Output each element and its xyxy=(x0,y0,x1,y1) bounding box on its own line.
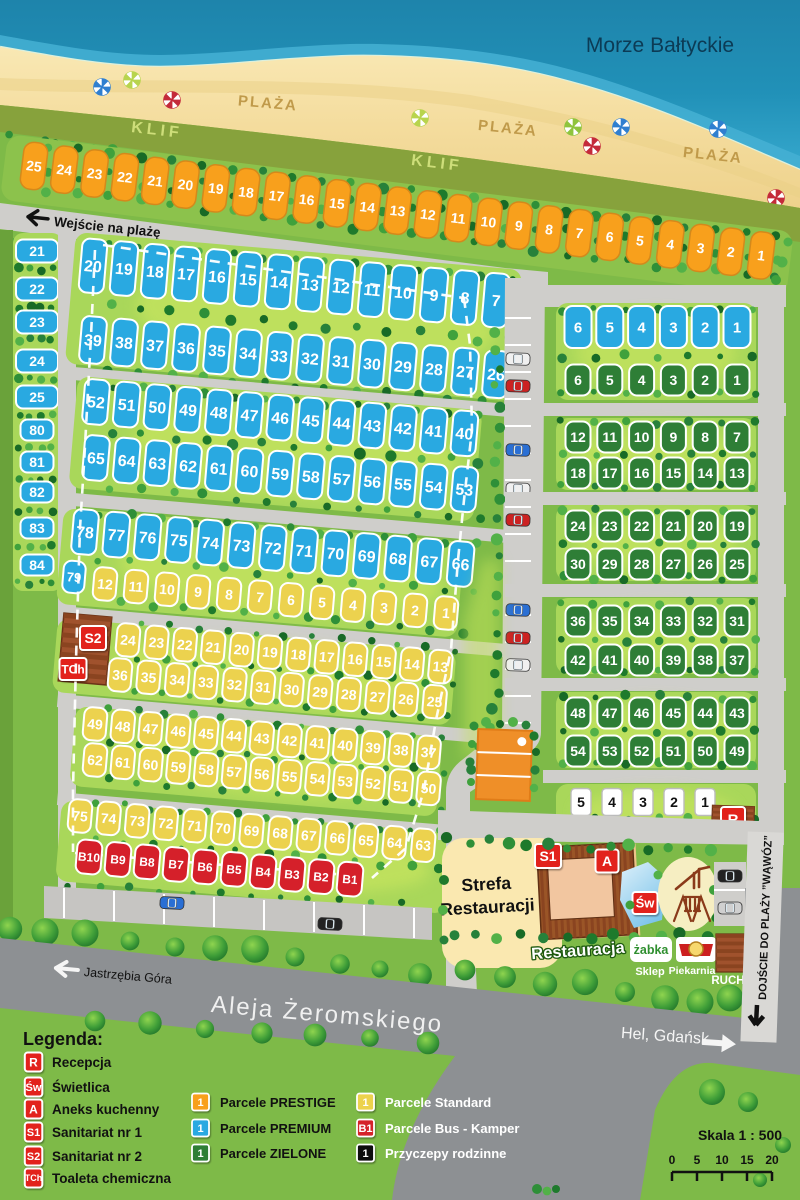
svg-text:80: 80 xyxy=(29,422,45,438)
svg-text:Skala 1 : 500: Skala 1 : 500 xyxy=(698,1127,782,1143)
svg-text:B8: B8 xyxy=(139,855,156,870)
svg-text:48: 48 xyxy=(209,404,228,422)
svg-text:43: 43 xyxy=(729,705,745,721)
svg-text:Parcele ZIELONE: Parcele ZIELONE xyxy=(220,1146,327,1161)
svg-text:83: 83 xyxy=(29,520,45,536)
svg-text:1: 1 xyxy=(701,794,709,810)
svg-text:35: 35 xyxy=(207,343,226,361)
svg-text:12: 12 xyxy=(570,429,586,445)
svg-text:14: 14 xyxy=(269,274,288,292)
svg-text:52: 52 xyxy=(86,394,105,412)
svg-text:Parcele PREMIUM: Parcele PREMIUM xyxy=(220,1121,331,1136)
svg-text:42: 42 xyxy=(570,652,586,668)
svg-text:3: 3 xyxy=(639,794,647,810)
svg-text:37: 37 xyxy=(145,337,164,355)
svg-text:68: 68 xyxy=(272,824,289,841)
svg-text:38: 38 xyxy=(392,741,409,758)
svg-text:32: 32 xyxy=(226,676,243,693)
svg-text:17: 17 xyxy=(602,465,618,481)
svg-text:4: 4 xyxy=(638,372,646,388)
svg-text:67: 67 xyxy=(420,553,439,571)
svg-text:46: 46 xyxy=(270,410,289,428)
svg-text:9: 9 xyxy=(670,429,678,445)
svg-text:7: 7 xyxy=(255,589,264,606)
svg-text:Legenda:: Legenda: xyxy=(23,1029,103,1049)
svg-text:63: 63 xyxy=(148,455,167,473)
svg-text:69: 69 xyxy=(243,822,260,839)
svg-text:34: 34 xyxy=(169,671,186,688)
svg-text:20: 20 xyxy=(177,176,195,194)
svg-text:73: 73 xyxy=(129,812,146,829)
svg-text:26: 26 xyxy=(398,691,415,708)
svg-text:20: 20 xyxy=(765,1153,779,1167)
svg-text:15: 15 xyxy=(666,465,682,481)
svg-text:17: 17 xyxy=(268,187,286,205)
svg-text:25: 25 xyxy=(29,389,45,405)
svg-text:1: 1 xyxy=(733,319,741,336)
svg-text:27: 27 xyxy=(666,556,682,572)
svg-text:18: 18 xyxy=(145,263,164,281)
svg-text:66: 66 xyxy=(451,556,470,574)
svg-text:37: 37 xyxy=(420,744,437,761)
svg-text:Sanitariat nr 2: Sanitariat nr 2 xyxy=(52,1149,142,1164)
svg-text:35: 35 xyxy=(602,613,618,629)
svg-text:41: 41 xyxy=(602,652,618,668)
svg-text:S1: S1 xyxy=(27,1127,40,1139)
svg-text:61: 61 xyxy=(114,754,131,771)
svg-text:12: 12 xyxy=(419,206,437,224)
svg-text:31: 31 xyxy=(729,613,745,629)
svg-text:54: 54 xyxy=(309,770,326,787)
svg-text:53: 53 xyxy=(602,743,618,759)
svg-text:44: 44 xyxy=(226,727,243,744)
svg-text:35: 35 xyxy=(140,669,157,686)
svg-text:24: 24 xyxy=(56,161,74,179)
svg-text:48: 48 xyxy=(570,705,586,721)
svg-text:9: 9 xyxy=(429,287,439,305)
svg-text:38: 38 xyxy=(114,335,133,353)
svg-text:15: 15 xyxy=(740,1153,754,1167)
svg-text:7: 7 xyxy=(491,293,501,311)
svg-text:13: 13 xyxy=(432,658,449,675)
svg-text:16: 16 xyxy=(347,651,364,668)
svg-text:46: 46 xyxy=(170,722,187,739)
svg-text:TCh: TCh xyxy=(25,1173,43,1183)
svg-text:32: 32 xyxy=(697,613,713,629)
svg-text:23: 23 xyxy=(29,314,45,330)
svg-text:50: 50 xyxy=(148,399,167,417)
svg-text:Morze Bałtyckie: Morze Bałtyckie xyxy=(586,34,734,57)
svg-text:Toaleta chemiczna: Toaleta chemiczna xyxy=(52,1171,172,1186)
svg-text:73: 73 xyxy=(232,537,251,555)
svg-text:1: 1 xyxy=(362,1148,368,1160)
svg-text:29: 29 xyxy=(312,683,329,700)
svg-text:2: 2 xyxy=(701,372,709,388)
svg-text:16: 16 xyxy=(207,269,226,287)
svg-text:74: 74 xyxy=(200,535,219,553)
svg-text:17: 17 xyxy=(318,648,335,665)
svg-text:Piekarnia: Piekarnia xyxy=(669,965,716,977)
svg-text:45: 45 xyxy=(666,705,682,721)
svg-text:8: 8 xyxy=(224,586,233,603)
svg-text:23: 23 xyxy=(148,634,165,651)
svg-text:45: 45 xyxy=(301,412,320,430)
svg-text:36: 36 xyxy=(112,666,129,683)
svg-text:61: 61 xyxy=(209,460,228,478)
svg-text:30: 30 xyxy=(362,356,381,374)
svg-text:6: 6 xyxy=(286,591,295,608)
svg-text:31: 31 xyxy=(331,353,350,371)
svg-text:10: 10 xyxy=(634,429,650,445)
svg-text:45: 45 xyxy=(198,725,215,742)
svg-text:12: 12 xyxy=(97,575,114,592)
svg-text:22: 22 xyxy=(176,636,193,653)
svg-text:36: 36 xyxy=(176,340,195,358)
svg-text:69: 69 xyxy=(357,548,376,566)
svg-text:3: 3 xyxy=(379,599,388,616)
svg-text:10: 10 xyxy=(715,1153,729,1167)
svg-text:25: 25 xyxy=(25,157,43,175)
svg-text:28: 28 xyxy=(424,361,443,379)
svg-text:23: 23 xyxy=(602,518,618,534)
svg-text:13: 13 xyxy=(729,465,745,481)
svg-text:14: 14 xyxy=(359,198,377,216)
svg-text:9: 9 xyxy=(193,584,202,601)
svg-text:Parcele PRESTIGE: Parcele PRESTIGE xyxy=(220,1095,336,1110)
svg-text:11: 11 xyxy=(602,429,617,445)
svg-text:1: 1 xyxy=(733,372,741,388)
svg-text:24: 24 xyxy=(570,518,586,534)
svg-text:51: 51 xyxy=(392,777,409,794)
svg-text:72: 72 xyxy=(263,540,282,558)
svg-text:52: 52 xyxy=(634,743,650,759)
svg-text:2: 2 xyxy=(670,794,678,810)
svg-text:68: 68 xyxy=(388,551,407,569)
svg-text:55: 55 xyxy=(393,476,412,494)
svg-text:B10: B10 xyxy=(77,849,100,865)
svg-text:15: 15 xyxy=(328,194,346,212)
svg-text:13: 13 xyxy=(389,202,407,220)
svg-text:49: 49 xyxy=(87,715,104,732)
svg-text:21: 21 xyxy=(666,518,682,534)
svg-text:71: 71 xyxy=(294,543,313,561)
svg-text:78: 78 xyxy=(75,524,94,542)
svg-text:66: 66 xyxy=(329,829,346,846)
svg-text:44: 44 xyxy=(697,705,713,721)
svg-text:B5: B5 xyxy=(226,862,243,877)
svg-text:53: 53 xyxy=(337,773,354,790)
svg-text:64: 64 xyxy=(386,834,403,851)
svg-text:B1: B1 xyxy=(342,872,359,887)
svg-text:4: 4 xyxy=(637,319,646,336)
svg-text:39: 39 xyxy=(83,332,102,350)
svg-text:16: 16 xyxy=(634,465,650,481)
svg-text:22: 22 xyxy=(116,168,134,186)
svg-text:34: 34 xyxy=(238,345,257,363)
svg-text:22: 22 xyxy=(634,518,650,534)
svg-text:B3: B3 xyxy=(284,867,301,882)
svg-text:72: 72 xyxy=(157,815,174,832)
svg-text:64: 64 xyxy=(117,453,136,471)
svg-text:71: 71 xyxy=(186,817,203,834)
svg-text:A: A xyxy=(602,853,612,869)
svg-text:2: 2 xyxy=(701,319,709,336)
svg-text:26: 26 xyxy=(697,556,713,572)
svg-text:Św: Św xyxy=(26,1081,42,1094)
svg-text:59: 59 xyxy=(170,758,187,775)
svg-text:65: 65 xyxy=(86,450,105,468)
svg-text:33: 33 xyxy=(197,674,214,691)
svg-text:17: 17 xyxy=(176,266,195,284)
svg-text:54: 54 xyxy=(570,743,586,759)
svg-text:39: 39 xyxy=(666,652,682,668)
svg-text:52: 52 xyxy=(365,775,382,792)
svg-text:11: 11 xyxy=(450,209,467,227)
svg-text:S2: S2 xyxy=(27,1151,40,1163)
svg-text:34: 34 xyxy=(634,613,650,629)
svg-text:Parcele Bus - Kamper: Parcele Bus - Kamper xyxy=(385,1121,519,1136)
svg-text:58: 58 xyxy=(301,468,320,486)
svg-text:15: 15 xyxy=(238,271,257,289)
svg-text:B7: B7 xyxy=(168,857,185,872)
svg-text:1: 1 xyxy=(197,1123,203,1135)
svg-text:30: 30 xyxy=(570,556,586,572)
svg-text:B4: B4 xyxy=(255,864,272,879)
svg-text:21: 21 xyxy=(29,243,45,259)
svg-text:76: 76 xyxy=(138,529,157,547)
svg-text:60: 60 xyxy=(142,756,159,773)
svg-text:21: 21 xyxy=(205,639,222,656)
svg-text:67: 67 xyxy=(300,827,317,844)
svg-text:51: 51 xyxy=(117,397,136,415)
svg-text:84: 84 xyxy=(29,557,45,573)
svg-text:S2: S2 xyxy=(84,630,101,646)
svg-text:32: 32 xyxy=(300,350,319,368)
svg-text:11: 11 xyxy=(128,578,144,595)
svg-text:57: 57 xyxy=(332,471,351,489)
svg-text:24: 24 xyxy=(120,631,137,648)
svg-text:10: 10 xyxy=(159,581,176,598)
svg-text:56: 56 xyxy=(363,474,382,492)
svg-text:50: 50 xyxy=(420,780,437,797)
svg-text:14: 14 xyxy=(404,655,421,672)
svg-text:19: 19 xyxy=(262,643,279,660)
svg-text:Parcele Standard: Parcele Standard xyxy=(385,1095,491,1110)
svg-text:60: 60 xyxy=(240,463,259,481)
svg-text:6: 6 xyxy=(574,319,582,336)
svg-text:15: 15 xyxy=(375,653,392,670)
svg-text:59: 59 xyxy=(270,466,289,484)
svg-text:5: 5 xyxy=(317,594,326,611)
svg-text:TCh: TCh xyxy=(61,662,84,676)
svg-text:65: 65 xyxy=(358,832,375,849)
svg-text:29: 29 xyxy=(602,556,618,572)
svg-text:B9: B9 xyxy=(110,852,127,867)
svg-text:58: 58 xyxy=(198,761,215,778)
svg-text:Sanitariat nr 1: Sanitariat nr 1 xyxy=(52,1125,143,1140)
svg-text:77: 77 xyxy=(107,527,126,545)
svg-text:27: 27 xyxy=(369,688,386,705)
svg-text:36: 36 xyxy=(570,613,586,629)
svg-text:19: 19 xyxy=(114,261,133,279)
svg-text:70: 70 xyxy=(215,820,232,837)
svg-text:13: 13 xyxy=(300,276,319,294)
svg-text:A: A xyxy=(29,1102,38,1116)
svg-text:7: 7 xyxy=(733,429,741,445)
svg-text:25: 25 xyxy=(729,556,745,572)
svg-text:43: 43 xyxy=(363,418,382,436)
svg-text:5: 5 xyxy=(606,319,614,336)
svg-text:47: 47 xyxy=(602,705,618,721)
svg-text:14: 14 xyxy=(697,465,713,481)
svg-text:Św: Św xyxy=(636,896,656,911)
svg-text:39: 39 xyxy=(365,739,382,756)
svg-text:19: 19 xyxy=(729,518,745,534)
svg-text:18: 18 xyxy=(237,183,255,201)
svg-text:29: 29 xyxy=(393,358,412,376)
svg-text:R: R xyxy=(29,1055,38,1069)
svg-text:5: 5 xyxy=(577,794,585,810)
svg-text:42: 42 xyxy=(281,732,298,749)
svg-text:3: 3 xyxy=(669,319,677,336)
svg-text:33: 33 xyxy=(269,348,288,366)
svg-text:28: 28 xyxy=(634,556,650,572)
svg-text:55: 55 xyxy=(281,768,298,785)
svg-text:5: 5 xyxy=(694,1153,701,1167)
svg-text:19: 19 xyxy=(207,180,225,198)
svg-text:6: 6 xyxy=(574,372,582,388)
svg-text:16: 16 xyxy=(298,191,316,209)
svg-text:Świetlica: Świetlica xyxy=(52,1080,110,1095)
svg-text:54: 54 xyxy=(424,479,443,497)
svg-text:1: 1 xyxy=(197,1097,203,1109)
svg-text:62: 62 xyxy=(178,458,197,476)
svg-text:57: 57 xyxy=(226,763,243,780)
svg-text:49: 49 xyxy=(729,743,745,759)
svg-text:75: 75 xyxy=(169,532,188,550)
svg-text:żabka: żabka xyxy=(634,943,670,957)
svg-text:70: 70 xyxy=(326,545,345,563)
svg-text:18: 18 xyxy=(290,646,307,663)
svg-text:40: 40 xyxy=(337,737,354,754)
svg-text:63: 63 xyxy=(415,837,432,854)
svg-text:51: 51 xyxy=(666,743,682,759)
svg-text:4: 4 xyxy=(348,597,357,614)
svg-text:41: 41 xyxy=(309,734,326,751)
svg-text:20: 20 xyxy=(233,641,250,658)
svg-text:Recepcja: Recepcja xyxy=(52,1055,112,1070)
svg-text:44: 44 xyxy=(332,415,351,433)
svg-text:82: 82 xyxy=(29,484,45,500)
svg-text:4: 4 xyxy=(608,794,616,810)
svg-text:0: 0 xyxy=(669,1153,676,1167)
svg-text:Strefa: Strefa xyxy=(461,873,512,896)
svg-text:8: 8 xyxy=(701,429,709,445)
svg-text:1: 1 xyxy=(441,605,450,622)
svg-text:42: 42 xyxy=(393,420,412,438)
svg-text:23: 23 xyxy=(86,165,104,183)
svg-text:30: 30 xyxy=(283,681,300,698)
svg-text:48: 48 xyxy=(114,718,131,735)
svg-text:43: 43 xyxy=(253,730,270,747)
svg-text:49: 49 xyxy=(178,402,197,420)
svg-text:22: 22 xyxy=(29,281,45,297)
svg-text:24: 24 xyxy=(29,353,45,369)
svg-text:B6: B6 xyxy=(197,860,214,875)
svg-text:18: 18 xyxy=(570,465,586,481)
svg-text:46: 46 xyxy=(634,705,650,721)
svg-text:1: 1 xyxy=(362,1097,368,1109)
svg-text:Sklep: Sklep xyxy=(635,966,665,978)
svg-text:47: 47 xyxy=(240,407,259,425)
svg-text:28: 28 xyxy=(340,686,357,703)
svg-text:Aneks kuchenny: Aneks kuchenny xyxy=(52,1102,160,1117)
svg-text:B1: B1 xyxy=(358,1123,372,1135)
svg-text:20: 20 xyxy=(697,518,713,534)
svg-text:10: 10 xyxy=(480,213,498,231)
svg-text:31: 31 xyxy=(255,679,272,696)
svg-text:40: 40 xyxy=(634,652,650,668)
svg-text:38: 38 xyxy=(697,652,713,668)
svg-text:37: 37 xyxy=(729,652,745,668)
svg-text:S1: S1 xyxy=(539,848,556,864)
svg-text:2: 2 xyxy=(410,602,419,619)
svg-text:74: 74 xyxy=(100,810,117,827)
svg-text:3: 3 xyxy=(670,372,678,388)
svg-text:62: 62 xyxy=(87,751,104,768)
svg-text:47: 47 xyxy=(142,720,159,737)
svg-text:1: 1 xyxy=(197,1148,203,1160)
svg-text:12: 12 xyxy=(331,279,350,297)
svg-text:33: 33 xyxy=(666,613,682,629)
svg-text:21: 21 xyxy=(146,172,164,190)
svg-text:Przyczepy rodzinne: Przyczepy rodzinne xyxy=(385,1146,506,1161)
svg-text:B2: B2 xyxy=(313,869,330,884)
svg-text:50: 50 xyxy=(697,743,713,759)
svg-text:56: 56 xyxy=(253,766,270,783)
svg-text:41: 41 xyxy=(424,423,443,441)
svg-text:5: 5 xyxy=(606,372,614,388)
svg-text:81: 81 xyxy=(29,454,45,470)
